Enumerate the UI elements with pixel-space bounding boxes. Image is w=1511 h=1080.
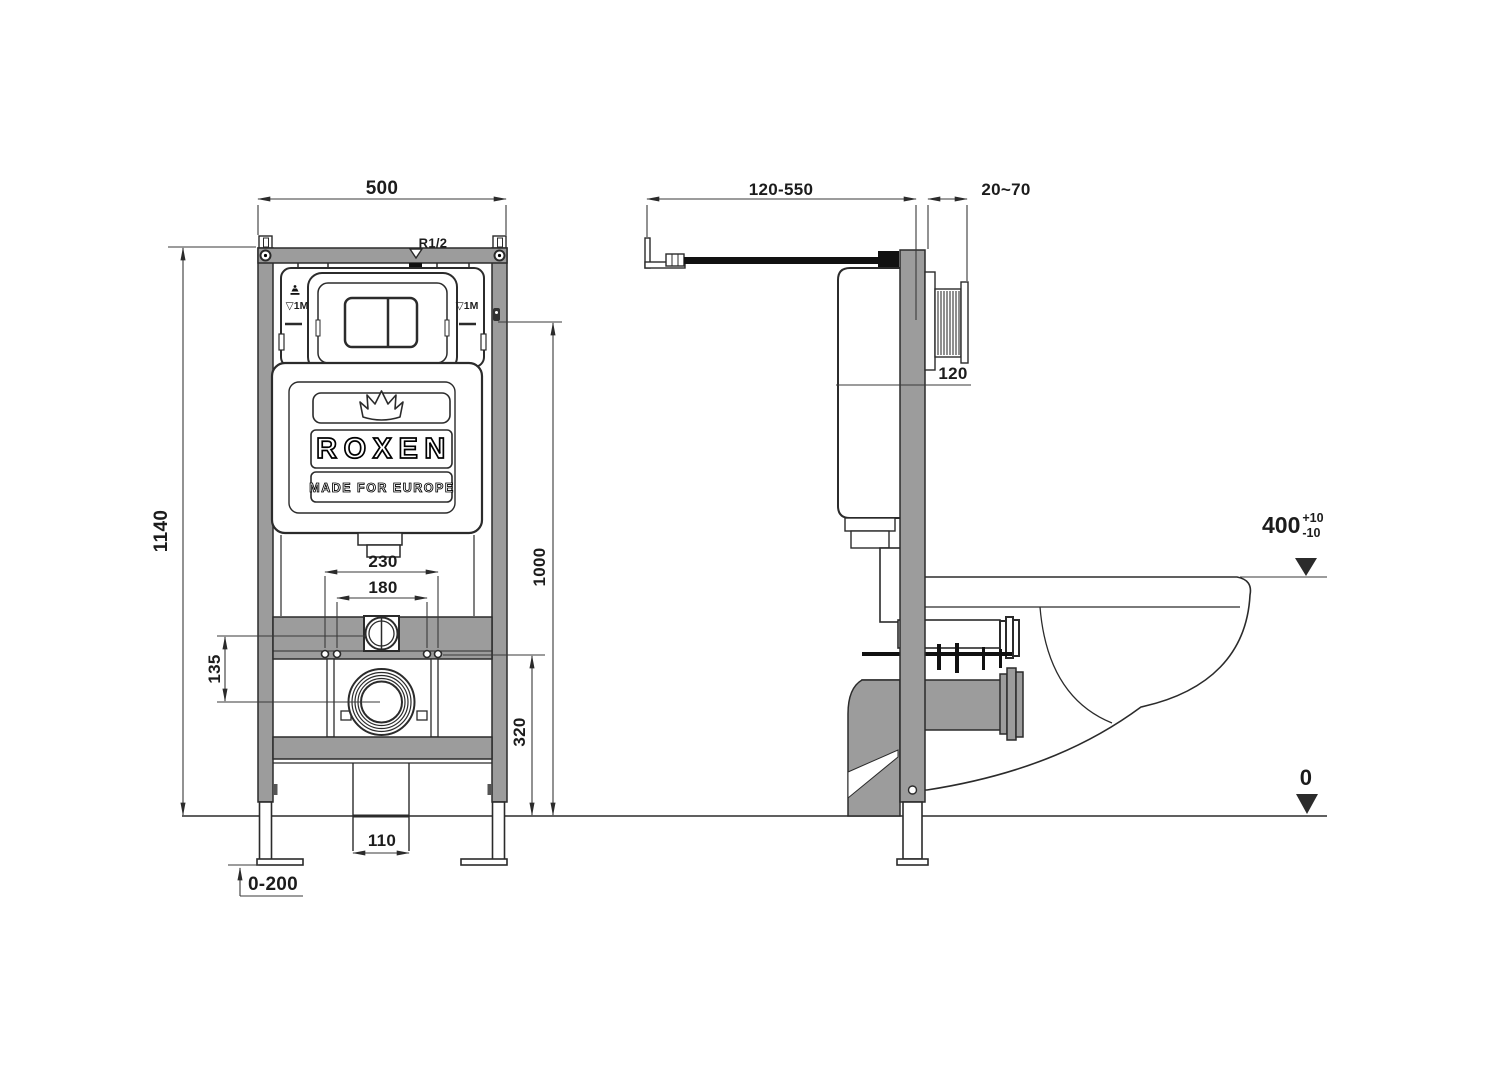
side-leg — [903, 802, 922, 859]
rail-right — [492, 248, 507, 802]
floor-level-label: 0 — [1300, 765, 1313, 791]
front-view-frame: ROXEN MADE FOR EUROPE — [182, 236, 1327, 865]
rail-left — [258, 248, 273, 802]
cistern-side — [838, 268, 902, 518]
extension-sleeve — [935, 289, 961, 357]
rim-tol-minus: -10 — [1302, 526, 1323, 541]
dim-bolt-outer-label: 230 — [368, 552, 397, 572]
leg-right — [493, 802, 505, 860]
sleeve-flange — [961, 282, 968, 363]
bolt-hole — [435, 651, 442, 658]
foot-right — [461, 859, 507, 865]
dim-plate-center-label: 1000 — [530, 547, 550, 586]
level-marker-icon — [1295, 558, 1317, 576]
drain-elbow — [848, 680, 900, 816]
dim-leg-adjust-label: 0-200 — [248, 874, 298, 896]
dim-bolt-height-label: 320 — [510, 717, 530, 746]
dim-height-label: 1140 — [151, 510, 173, 552]
dim-bolt-inner-label: 180 — [368, 578, 397, 598]
dim-width-label: 500 — [366, 178, 399, 200]
level-mark-right-label: ▽1M — [456, 300, 479, 312]
side-view — [645, 238, 1250, 865]
strut — [327, 659, 334, 737]
level-marker-icon — [1296, 794, 1318, 814]
bolt-hole — [322, 651, 329, 658]
level-mark-left-label: ▽1M — [286, 300, 309, 312]
dim-offset-label: 135 — [205, 654, 225, 683]
flush-bend-pipe — [880, 548, 902, 622]
top-crossbar — [258, 248, 507, 263]
bolt-hole — [334, 651, 341, 658]
bolt-hole — [424, 651, 431, 658]
foot-left — [257, 859, 303, 865]
dim-depth-label: 120-550 — [749, 180, 814, 200]
tank-neck — [358, 533, 402, 545]
pipe-connector — [666, 254, 684, 266]
flush-buttons — [345, 298, 417, 347]
rim-tol-plus: +10 — [1302, 511, 1323, 526]
leg-left — [260, 802, 272, 860]
dim-tank-depth-label: 120 — [938, 364, 967, 384]
brand-name: ROXEN — [316, 433, 452, 465]
blueprint-canvas: ROXEN MADE FOR EUROPE — [0, 0, 1511, 1080]
brand-tagline: MADE FOR EUROPE — [309, 481, 454, 495]
lower-crossbar — [273, 737, 492, 759]
load-plate — [925, 272, 935, 370]
rim-level-label: 400 +10 -10 — [1262, 514, 1324, 541]
rim-level-value: 400 — [1262, 514, 1300, 537]
drain-flange — [1000, 674, 1007, 734]
side-foot — [897, 859, 928, 865]
thread-label: R1/2 — [419, 236, 448, 251]
dim-drain-pipe-label: 110 — [368, 831, 396, 851]
strut — [431, 659, 438, 737]
dim-wall-label: 20~70 — [981, 180, 1030, 200]
supply-pipe — [684, 257, 878, 264]
side-rail — [900, 250, 925, 802]
rail-clip-icon — [493, 308, 500, 321]
